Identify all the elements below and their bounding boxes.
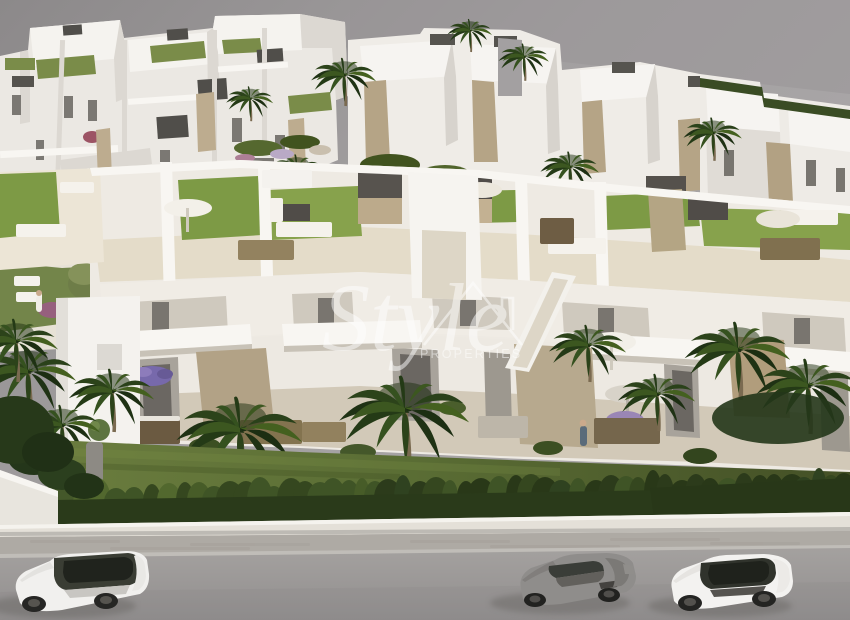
svg-text:PROPERTIES: PROPERTIES: [420, 347, 522, 361]
